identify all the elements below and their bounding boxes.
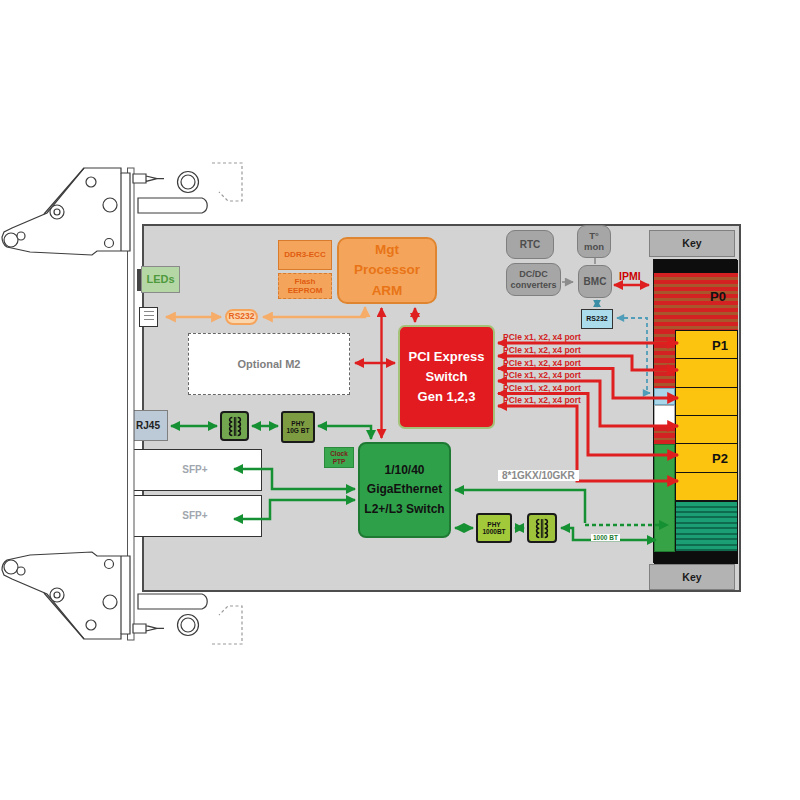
rtc-label: RTC bbox=[520, 239, 541, 251]
sfp-bottom-label: SFP+ bbox=[182, 510, 207, 522]
flash-label-line2: EEPROM bbox=[288, 286, 323, 295]
tmon-label-line1: T° bbox=[589, 231, 599, 242]
left-col-green-segment bbox=[654, 444, 675, 552]
temp-monitor-block: T° mon bbox=[577, 225, 611, 258]
optional-m2-block: Optional M2 bbox=[188, 333, 350, 395]
rtc-block: RTC bbox=[506, 230, 554, 259]
transformer-icon bbox=[220, 411, 249, 441]
clock-label-line2: PTP bbox=[333, 458, 346, 465]
mgmt-1000bt-link-label: 1000 BT bbox=[591, 534, 620, 541]
pcie-label-line3: Gen 1,2,3 bbox=[418, 387, 476, 407]
arm-label-line3: ARM bbox=[372, 281, 403, 301]
pcie-label-line2: Switch bbox=[426, 367, 468, 387]
p0-label: P0 bbox=[710, 289, 726, 304]
backplane-ethernet-link-label: 8*1GKX/10GKR bbox=[498, 470, 579, 481]
connector-slot: P1 bbox=[676, 331, 737, 359]
rs232-front-link-pill: RS232 bbox=[225, 309, 258, 325]
phy10g-label-line2: 10G BT bbox=[287, 427, 310, 434]
console-connector-icon bbox=[139, 307, 158, 327]
clock-label-line1: Clock bbox=[330, 450, 348, 457]
pcie-port-label-1: PCIe x1, x2, x4 port bbox=[503, 332, 581, 342]
dcdc-label-line2: converters bbox=[510, 280, 556, 290]
phy1000-label-line1: PHY bbox=[487, 521, 500, 528]
rs232-bmc-block: RS232 bbox=[581, 309, 613, 329]
backplane-connector-stack: P0 P1 P2 bbox=[653, 259, 737, 563]
dcdc-converters-block: DC/DC converters bbox=[506, 263, 561, 296]
left-col-blue-segment bbox=[654, 388, 675, 405]
p1-p2-connector-rows: P1 P2 bbox=[675, 330, 738, 501]
phy1000-label-line2: 1000BT bbox=[482, 528, 505, 535]
optional-m2-label: Optional M2 bbox=[238, 358, 301, 371]
connector-slot bbox=[676, 473, 737, 500]
leds-label: LEDs bbox=[146, 273, 174, 286]
connector-slot bbox=[676, 416, 737, 444]
rs232-pill-label: RS232 bbox=[229, 312, 255, 322]
connector-top-bar bbox=[654, 260, 738, 273]
phy-1000bt-block: PHY 1000BT bbox=[476, 513, 512, 543]
tmon-label-line2: mon bbox=[584, 242, 604, 253]
eth-switch-label-line2: GigaEthernet bbox=[367, 480, 442, 499]
eth-switch-label-line3: L2+/L3 Switch bbox=[364, 500, 444, 519]
left-col-red-segment bbox=[654, 426, 675, 445]
rs232-box-label: RS232 bbox=[586, 315, 607, 323]
arm-label-line2: Processor bbox=[354, 260, 420, 280]
sfp-cage-bottom: SFP+ bbox=[128, 495, 262, 537]
p2-label: P2 bbox=[712, 450, 728, 465]
board-block-diagram: LEDs RS232 RJ45 SFP+ SFP+ DDR3-ECC Flash… bbox=[0, 0, 800, 800]
gigaethernet-switch-block: 1/10/40 GigaEthernet L2+/L3 Switch bbox=[358, 442, 451, 538]
connector-slot bbox=[676, 388, 737, 416]
ddr3-ecc-block: DDR3-ECC bbox=[278, 240, 332, 270]
ddr3-label: DDR3-ECC bbox=[284, 250, 325, 259]
connector-slot: P2 bbox=[676, 444, 737, 472]
pcie-port-label-3: PCIe x1, x2, x4 port bbox=[503, 358, 581, 368]
transformer-icon bbox=[527, 513, 557, 543]
eth-switch-label-line1: 1/10/40 bbox=[384, 461, 424, 480]
ipmi-label: IPMI bbox=[619, 270, 641, 282]
connector-bottom-bar bbox=[654, 552, 738, 564]
mgt-processor-arm-block: Mgt Processor ARM bbox=[337, 237, 437, 304]
flash-eeprom-block: Flash EEPROM bbox=[278, 273, 332, 299]
pcie-port-label-2: PCIe x1, x2, x4 port bbox=[503, 345, 581, 355]
p0-connector: P0 bbox=[654, 273, 738, 330]
key-top-label: Key bbox=[682, 237, 701, 249]
key-bottom-label: Key bbox=[682, 571, 701, 583]
leds-indicator-block: LEDs bbox=[141, 266, 180, 293]
key-block-top: Key bbox=[649, 230, 735, 257]
gigabit-backplane-connector bbox=[675, 501, 738, 552]
left-col-red-segment bbox=[654, 330, 675, 388]
rj45-label: RJ45 bbox=[136, 420, 160, 432]
pcie-port-label-5: PCIe x1, x2, x4 port bbox=[503, 383, 581, 393]
bmc-label: BMC bbox=[584, 276, 607, 288]
key-block-bottom: Key bbox=[649, 564, 735, 590]
pcie-label-line1: PCI Express bbox=[409, 347, 485, 367]
rj45-port-block: RJ45 bbox=[128, 410, 168, 441]
pcie-port-label-6: PCIe x1, x2, x4 port bbox=[503, 395, 581, 405]
pci-express-switch-block: PCI Express Switch Gen 1,2,3 bbox=[398, 325, 495, 429]
dcdc-label-line1: DC/DC bbox=[519, 269, 548, 279]
connector-slot bbox=[676, 359, 737, 387]
pcie-port-label-4: PCIe x1, x2, x4 port bbox=[503, 370, 581, 380]
phy10g-label-line1: PHY bbox=[291, 420, 304, 427]
p1-label: P1 bbox=[712, 337, 728, 352]
flash-label-line1: Flash bbox=[295, 277, 316, 286]
phy-10g-bt-block: PHY 10G BT bbox=[281, 411, 315, 443]
sfp-cage-top: SFP+ bbox=[128, 449, 262, 491]
bmc-block: BMC bbox=[578, 265, 612, 298]
connector-pins-icon bbox=[144, 311, 154, 323]
left-col-white-segment bbox=[654, 405, 675, 426]
clock-ptp-block: Clock PTP bbox=[324, 447, 354, 468]
arm-label-line1: Mgt bbox=[375, 240, 399, 260]
front-panel-strip bbox=[128, 168, 135, 640]
sfp-top-label: SFP+ bbox=[182, 464, 207, 476]
